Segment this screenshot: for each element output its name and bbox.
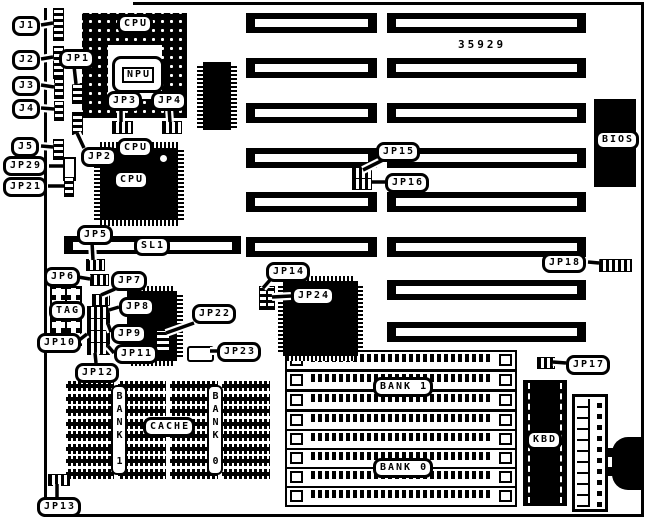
isa-slot <box>387 103 586 123</box>
jumper-label-jp13: JP13 <box>37 497 81 517</box>
pointer-line <box>109 307 119 310</box>
pointer-line <box>41 108 54 109</box>
simm-latch-right <box>499 471 512 483</box>
simm-latch-right <box>499 414 512 426</box>
simm-contacts <box>311 490 491 498</box>
pointer-line <box>41 57 53 59</box>
jumper-label-jp16: JP16 <box>385 173 429 193</box>
cpu-qfp-pins-right <box>178 150 184 220</box>
simm-contacts <box>311 414 491 422</box>
connector-label-j3: J3 <box>12 76 40 96</box>
isa-slot <box>387 280 586 300</box>
simm-latch-left <box>290 490 303 502</box>
isa-slot <box>246 13 377 33</box>
io-qfp-pins-bottom <box>287 356 354 361</box>
jp2-jumper <box>72 112 83 135</box>
pointer-line <box>588 262 599 263</box>
jumper-label-jp10: JP10 <box>37 333 81 353</box>
jp16-jumper <box>352 178 372 190</box>
jumper-label-jp24: JP24 <box>291 286 335 306</box>
jp24-jumper-a <box>259 286 267 310</box>
cache-chip <box>222 444 270 454</box>
jp24-jumper-b <box>267 286 275 310</box>
cache-label: CACHE <box>143 417 195 437</box>
jp3-jumper <box>112 121 133 134</box>
isa-slot <box>387 13 586 33</box>
isa-slot <box>246 103 377 123</box>
slot-stripe <box>255 243 368 251</box>
isa-slot <box>246 148 377 168</box>
slot-stripe <box>396 64 577 72</box>
cpu-qfp-pins-bottom <box>100 220 178 226</box>
cache-chip <box>222 431 270 441</box>
jp18-jumper <box>599 259 632 272</box>
cache-chip <box>222 419 270 429</box>
bank0-cache-label: BANK 0 <box>207 385 223 475</box>
simm-latch-left <box>290 394 303 406</box>
bank1-cache-label: BANK 1 <box>111 385 127 475</box>
cache-chip <box>222 456 270 466</box>
npu-label: NPU <box>122 67 154 83</box>
pointer-line <box>588 262 599 263</box>
support-chip <box>203 62 231 130</box>
slot-stripe <box>396 328 577 336</box>
simm-socket <box>285 429 517 450</box>
cpu-qfp-top-label: CPU <box>117 138 153 158</box>
npu-socket: NPU <box>112 56 164 93</box>
cpu-socket-label: CPU <box>117 14 153 34</box>
j3-header <box>54 78 64 99</box>
cache-chip <box>66 469 114 479</box>
connector-label-j2: J2 <box>12 50 40 70</box>
connector-label-j5: J5 <box>11 137 39 157</box>
pointer-line <box>41 108 54 109</box>
sl1-label: SL1 <box>134 236 170 256</box>
pointer-line <box>77 133 84 148</box>
jp23-component <box>187 346 214 362</box>
jumper-label-jp11: JP11 <box>114 344 158 364</box>
din-tab-top <box>606 448 614 457</box>
jp1-jumper <box>72 83 83 104</box>
jumper-label-jp14: JP14 <box>266 262 310 282</box>
jumper-label-jp21: JP21 <box>3 177 47 197</box>
jumper-label-jp15: JP15 <box>376 142 420 162</box>
slot-stripe <box>255 19 368 27</box>
jp22-jumper <box>156 330 170 354</box>
cpu-qfp-center-label: CPU <box>113 170 149 190</box>
slot-stripe <box>396 286 577 294</box>
pointer-line <box>41 23 53 25</box>
slot-stripe <box>255 109 368 117</box>
chip-pins-right <box>231 64 237 128</box>
keyboard-din-connector <box>612 437 643 490</box>
simm-latch-right <box>499 490 512 502</box>
jumper-label-jp8: JP8 <box>119 297 155 317</box>
cpu-pin1-dot <box>160 155 167 162</box>
tag-label: TAG <box>49 301 85 321</box>
cache-chip <box>66 394 114 404</box>
jp13-jumper <box>48 474 70 486</box>
isa-slot <box>387 192 586 212</box>
jp6-jumper <box>90 274 109 286</box>
simm-latch-right <box>499 433 512 445</box>
slot-stripe <box>255 154 368 162</box>
cache-chip <box>66 419 114 429</box>
jumper-label-jp6: JP6 <box>44 267 80 287</box>
cache-chip <box>66 431 114 441</box>
jumper-label-jp4: JP4 <box>151 91 187 111</box>
pointer-line <box>41 85 54 87</box>
jumper-label-jp1: JP1 <box>59 49 95 69</box>
jumper-label-jp2: JP2 <box>81 147 117 167</box>
bank0-simm-label: BANK 0 <box>373 458 433 478</box>
jp17-jumper <box>537 357 555 369</box>
isa-slot <box>246 192 377 212</box>
jp21-jumper <box>64 177 74 197</box>
pointer-line <box>77 133 84 148</box>
kbd-label: KBD <box>526 430 562 450</box>
jumper-label-jp17: JP17 <box>566 355 610 375</box>
jp4-jumper <box>162 121 182 134</box>
simm-latch-right <box>499 452 512 464</box>
j1-header <box>53 8 64 41</box>
simm-latch-left <box>290 433 303 445</box>
simm-latch-right <box>499 374 512 386</box>
jumper-label-jp23: JP23 <box>217 342 261 362</box>
slot-stripe <box>396 154 577 162</box>
bank1-simm-label: BANK 1 <box>373 377 433 397</box>
jp7-jumper <box>92 294 110 306</box>
simm-contacts <box>311 433 491 441</box>
jumper-label-jp22: JP22 <box>192 304 236 324</box>
isa-slot <box>387 58 586 78</box>
slot-stripe <box>396 243 577 251</box>
slot-stripe <box>396 198 577 206</box>
cache-chip <box>222 469 270 479</box>
slot-stripe <box>255 64 368 72</box>
jumper-label-jp29: JP29 <box>3 156 47 176</box>
jumper-label-jp18: JP18 <box>542 253 586 273</box>
power-connector-slots <box>597 399 602 507</box>
power-connector <box>572 394 608 512</box>
pointer-line <box>109 307 119 310</box>
simm-latch-right <box>499 354 512 366</box>
j4-header <box>54 101 64 121</box>
simm-latch-left <box>290 452 303 464</box>
cache-chip <box>222 381 270 391</box>
isa-slot <box>246 58 377 78</box>
jp12-jumper <box>87 342 110 355</box>
jp5-jumper <box>86 259 105 271</box>
simm-socket <box>285 486 517 507</box>
cache-chip <box>222 406 270 416</box>
simm-socket <box>285 410 517 431</box>
jumper-label-jp3: JP3 <box>106 91 142 111</box>
simm-latch-left <box>290 414 303 426</box>
simm-latch-right <box>499 394 512 406</box>
connector-label-j4: J4 <box>12 99 40 119</box>
motherboard-diagram: NPU CPU CPU CPU SL1 BIOS KBD <box>0 0 645 522</box>
din-tab-bottom <box>606 467 614 476</box>
pointer-line <box>41 146 53 147</box>
isa-slot <box>387 322 586 342</box>
cache-chip <box>66 444 114 454</box>
cache-chip <box>66 406 114 416</box>
board-edge-top <box>133 2 643 5</box>
chipset-pins-right <box>177 295 183 357</box>
pointer-line <box>41 146 53 147</box>
slot-stripe <box>396 109 577 117</box>
connector-label-j1: J1 <box>12 16 40 36</box>
io-qfp-pins-right <box>358 285 363 352</box>
simm-latch-left <box>290 374 303 386</box>
jumper-label-jp7: JP7 <box>111 271 147 291</box>
bios-label: BIOS <box>595 130 639 150</box>
jumper-label-jp5: JP5 <box>77 225 113 245</box>
board-edge-bottom <box>44 514 644 517</box>
isa-slot <box>246 237 377 257</box>
pointer-line <box>41 85 54 87</box>
cache-chip <box>66 456 114 466</box>
slot-stripe <box>255 198 368 206</box>
jumper-label-jp9: JP9 <box>111 324 147 344</box>
simm-latch-left <box>290 471 303 483</box>
pointer-line <box>41 23 53 25</box>
board-edge-left <box>44 8 47 517</box>
power-connector-pins <box>577 399 590 507</box>
pointer-line <box>41 57 53 59</box>
slot-stripe <box>396 19 577 27</box>
part-number: 35929 <box>458 38 506 51</box>
jumper-label-jp12: JP12 <box>75 363 119 383</box>
cache-chip <box>222 394 270 404</box>
